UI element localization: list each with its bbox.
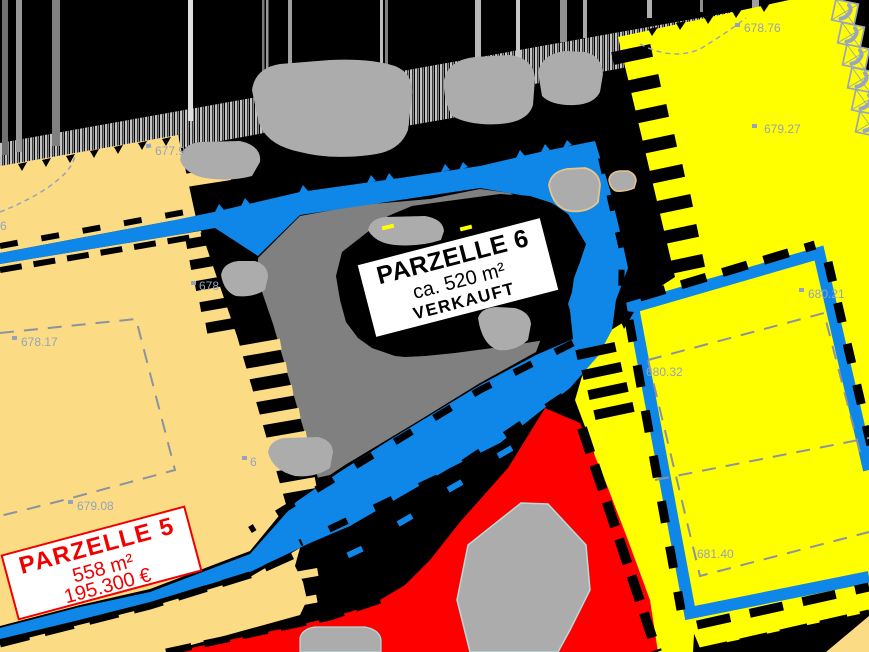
svg-text:679.27: 679.27	[764, 122, 801, 136]
svg-text:6: 6	[250, 455, 257, 469]
svg-text:680.21: 680.21	[808, 287, 845, 301]
svg-text:6: 6	[0, 219, 7, 233]
svg-text:681.40: 681.40	[697, 547, 734, 561]
svg-text:680.32: 680.32	[646, 365, 683, 379]
svg-text:678.17: 678.17	[21, 335, 58, 349]
svg-text:678.76: 678.76	[744, 21, 781, 35]
svg-text:677.9: 677.9	[155, 144, 185, 158]
svg-text:679.08: 679.08	[77, 499, 114, 513]
svg-text:678: 678	[199, 279, 219, 293]
